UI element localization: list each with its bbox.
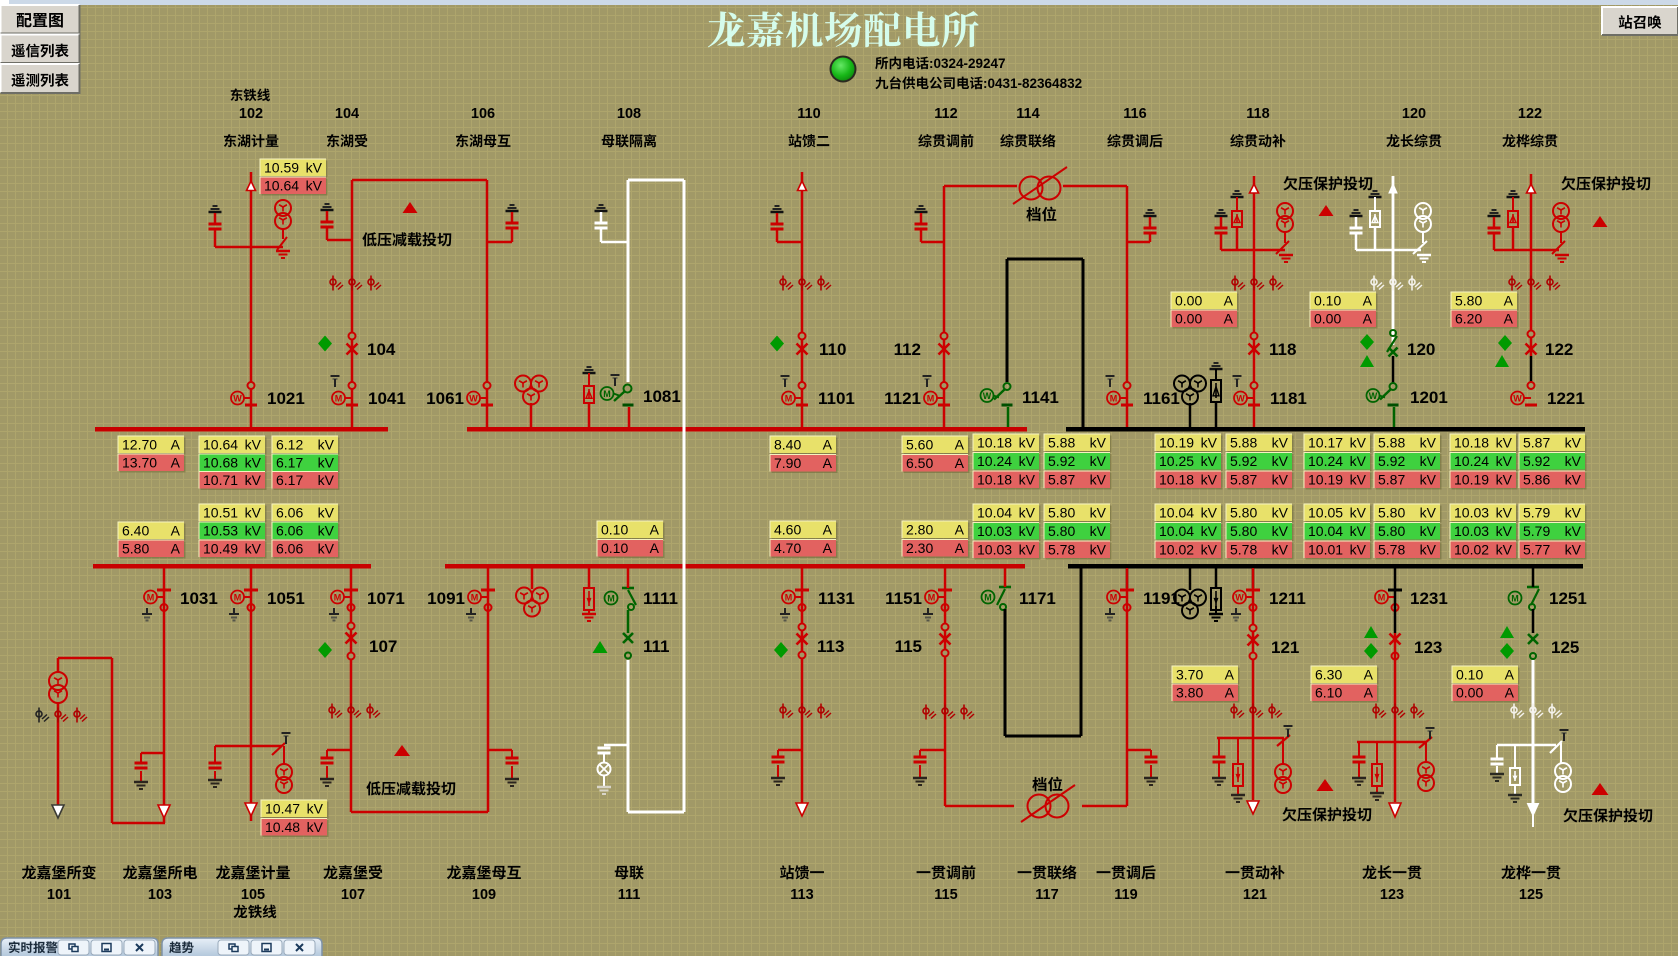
svg-text:1081: 1081	[643, 387, 681, 406]
svg-text:1021: 1021	[267, 389, 305, 408]
svg-text:A: A	[955, 455, 965, 471]
svg-text:A: A	[1224, 311, 1234, 327]
svg-text:A: A	[171, 541, 181, 557]
svg-text:kV: kV	[1090, 435, 1107, 451]
svg-text:111: 111	[618, 887, 641, 903]
svg-text:kV: kV	[1201, 453, 1218, 469]
svg-text:1041: 1041	[368, 389, 406, 408]
svg-text:W: W	[1513, 394, 1522, 404]
svg-text:125: 125	[1519, 887, 1543, 903]
svg-text:kV: kV	[1420, 472, 1437, 488]
svg-text:M: M	[1378, 593, 1386, 603]
svg-text:A: A	[1363, 293, 1373, 309]
svg-text:kV: kV	[318, 472, 335, 488]
svg-text:M: M	[234, 593, 242, 603]
svg-text:kV: kV	[1090, 523, 1107, 539]
svg-text:113: 113	[817, 637, 844, 656]
svg-text:kV: kV	[1201, 472, 1218, 488]
svg-text:kV: kV	[318, 437, 335, 453]
svg-text:125: 125	[1551, 638, 1579, 657]
svg-text:10.04: 10.04	[1308, 523, 1343, 539]
svg-text:kV: kV	[1350, 453, 1367, 469]
svg-text::0431-82364832: :0431-82364832	[983, 76, 1082, 91]
svg-text:101: 101	[47, 887, 71, 903]
svg-text:A: A	[823, 437, 833, 453]
svg-text:10.19: 10.19	[1454, 472, 1489, 488]
svg-text:M: M	[607, 594, 615, 604]
svg-text:5.80: 5.80	[1378, 505, 1405, 521]
svg-text:118: 118	[1269, 340, 1296, 359]
svg-text:10.64: 10.64	[264, 178, 299, 194]
svg-text:10.04: 10.04	[1159, 505, 1194, 521]
svg-text:6.20: 6.20	[1455, 311, 1482, 327]
svg-text:kV: kV	[1565, 453, 1582, 469]
svg-text:A: A	[955, 540, 965, 556]
svg-text:M: M	[928, 593, 936, 603]
svg-text:M: M	[603, 389, 611, 399]
svg-text:A: A	[1364, 667, 1374, 683]
svg-text:5.79: 5.79	[1523, 523, 1550, 539]
svg-text:kV: kV	[307, 801, 324, 817]
svg-text:109: 109	[472, 887, 496, 903]
svg-text:kV: kV	[318, 455, 335, 471]
svg-text:kV: kV	[307, 819, 324, 835]
svg-text:10.59: 10.59	[264, 160, 299, 176]
svg-text:0.10: 0.10	[1456, 667, 1483, 683]
svg-text:kV: kV	[245, 455, 262, 471]
svg-text:4.70: 4.70	[774, 540, 801, 556]
svg-text:5.78: 5.78	[1048, 542, 1075, 558]
svg-text:M: M	[334, 593, 342, 603]
svg-text:W: W	[233, 394, 242, 404]
svg-text:113: 113	[790, 887, 813, 903]
svg-text:2.30: 2.30	[906, 540, 933, 556]
svg-text:10.19: 10.19	[1159, 435, 1194, 451]
svg-text:kV: kV	[1420, 542, 1437, 558]
svg-text:10.25: 10.25	[1159, 453, 1194, 469]
svg-text:5.80: 5.80	[1048, 505, 1075, 521]
svg-text:120: 120	[1402, 106, 1426, 122]
svg-text:kV: kV	[1420, 523, 1437, 539]
svg-text:107: 107	[341, 887, 365, 903]
svg-text:kV: kV	[1201, 523, 1218, 539]
svg-text:10.03: 10.03	[977, 523, 1012, 539]
svg-text:A: A	[1224, 293, 1234, 309]
svg-text:kV: kV	[245, 523, 262, 539]
svg-text:1251: 1251	[1549, 589, 1587, 608]
svg-text:6.12: 6.12	[276, 437, 303, 453]
svg-text:1121: 1121	[884, 389, 921, 408]
svg-text:10.64: 10.64	[203, 437, 238, 453]
svg-text:kV: kV	[1420, 505, 1437, 521]
svg-text:kV: kV	[1019, 435, 1036, 451]
svg-text:6.10: 6.10	[1315, 685, 1342, 701]
svg-text:A: A	[171, 455, 181, 471]
svg-text:M: M	[1110, 593, 1118, 603]
svg-text:kV: kV	[1496, 453, 1513, 469]
svg-text:5.80: 5.80	[1455, 293, 1482, 309]
svg-text:1091: 1091	[427, 589, 465, 608]
svg-text:kV: kV	[1201, 505, 1218, 521]
svg-text:1131: 1131	[818, 589, 855, 608]
svg-text:1171: 1171	[1019, 589, 1056, 608]
svg-text:M: M	[785, 593, 793, 603]
svg-text:0.00: 0.00	[1175, 293, 1202, 309]
svg-text:117: 117	[1035, 887, 1058, 903]
svg-text:1181: 1181	[1270, 389, 1307, 408]
svg-text:kV: kV	[1090, 505, 1107, 521]
svg-text:1061: 1061	[426, 389, 464, 408]
svg-text:10.18: 10.18	[977, 435, 1012, 451]
svg-text:10.04: 10.04	[1159, 523, 1194, 539]
svg-text:kV: kV	[245, 437, 262, 453]
svg-text:W: W	[983, 391, 992, 401]
svg-text:W: W	[1235, 593, 1244, 603]
svg-text:10.47: 10.47	[265, 801, 300, 817]
svg-text:6.06: 6.06	[276, 541, 303, 557]
svg-text:kV: kV	[1496, 505, 1513, 521]
svg-text:111: 111	[643, 637, 670, 656]
svg-text:A: A	[823, 522, 833, 538]
svg-text:5.87: 5.87	[1230, 472, 1257, 488]
svg-text:kV: kV	[1496, 435, 1513, 451]
svg-text:107: 107	[369, 637, 397, 656]
svg-text:10.01: 10.01	[1308, 542, 1343, 558]
svg-text:115: 115	[934, 887, 957, 903]
svg-text:kV: kV	[1496, 542, 1513, 558]
svg-text:105: 105	[241, 887, 265, 903]
svg-text:A: A	[171, 437, 181, 453]
svg-text:kV: kV	[1420, 453, 1437, 469]
svg-text:A: A	[1504, 311, 1514, 327]
svg-text:kV: kV	[1350, 435, 1367, 451]
svg-text:123: 123	[1414, 638, 1442, 657]
svg-text:1201: 1201	[1410, 388, 1448, 407]
svg-text::0324-29247: :0324-29247	[929, 56, 1006, 71]
svg-text:10.18: 10.18	[1159, 472, 1194, 488]
svg-text:kV: kV	[1272, 453, 1289, 469]
svg-text:10.05: 10.05	[1308, 505, 1343, 521]
svg-text:A: A	[1364, 685, 1374, 701]
svg-text:kV: kV	[1201, 435, 1218, 451]
svg-text:A: A	[1504, 293, 1514, 309]
svg-text:10.19: 10.19	[1308, 472, 1343, 488]
svg-text:5.78: 5.78	[1378, 542, 1405, 558]
svg-text:W: W	[1236, 394, 1245, 404]
svg-text:M: M	[1511, 594, 1519, 604]
svg-text:A: A	[955, 522, 965, 538]
svg-text:A: A	[823, 455, 833, 471]
svg-text:5.88: 5.88	[1048, 435, 1075, 451]
svg-text:116: 116	[1123, 106, 1146, 122]
svg-text:7.90: 7.90	[774, 455, 801, 471]
svg-text:5.80: 5.80	[1048, 523, 1075, 539]
svg-text:0.10: 0.10	[601, 522, 628, 538]
svg-text:103: 103	[148, 887, 172, 903]
svg-text:10.03: 10.03	[1454, 505, 1489, 521]
svg-text:10.02: 10.02	[1454, 542, 1489, 558]
svg-text:5.87: 5.87	[1378, 472, 1405, 488]
svg-text:5.88: 5.88	[1230, 435, 1257, 451]
svg-text:kV: kV	[245, 472, 262, 488]
svg-text:A: A	[1363, 311, 1373, 327]
svg-text:5.88: 5.88	[1378, 435, 1405, 451]
svg-text:kV: kV	[1272, 542, 1289, 558]
svg-text:A: A	[955, 437, 965, 453]
svg-text:6.40: 6.40	[122, 523, 149, 539]
svg-text:114: 114	[1016, 106, 1039, 122]
svg-text:A: A	[1225, 667, 1235, 683]
svg-text:13.70: 13.70	[122, 455, 157, 471]
svg-text:kV: kV	[1272, 523, 1289, 539]
svg-text:102: 102	[239, 106, 263, 122]
svg-text:0.10: 0.10	[1314, 293, 1341, 309]
svg-text:6.06: 6.06	[276, 505, 303, 521]
svg-text:kV: kV	[1565, 435, 1582, 451]
svg-text:10.71: 10.71	[203, 472, 238, 488]
svg-text:A: A	[1505, 685, 1515, 701]
svg-text:5.80: 5.80	[1230, 523, 1257, 539]
svg-text:6.17: 6.17	[276, 455, 303, 471]
svg-text:110: 110	[819, 340, 846, 359]
svg-text:10.17: 10.17	[1308, 435, 1343, 451]
svg-text:kV: kV	[318, 523, 335, 539]
svg-text:0.10: 0.10	[601, 540, 628, 556]
svg-text:10.24: 10.24	[1308, 453, 1343, 469]
svg-text:5.92: 5.92	[1230, 453, 1257, 469]
svg-text:5.92: 5.92	[1048, 453, 1075, 469]
svg-text:kV: kV	[1272, 505, 1289, 521]
svg-text:10.24: 10.24	[1454, 453, 1489, 469]
svg-text:10.24: 10.24	[977, 453, 1012, 469]
svg-text:8.40: 8.40	[774, 437, 801, 453]
svg-text:kV: kV	[1565, 472, 1582, 488]
svg-text:M: M	[927, 394, 935, 404]
svg-text:10.49: 10.49	[203, 541, 238, 557]
svg-text:5.87: 5.87	[1048, 472, 1075, 488]
svg-text:kV: kV	[245, 541, 262, 557]
svg-text:121: 121	[1243, 887, 1267, 903]
svg-text:kV: kV	[1090, 472, 1107, 488]
svg-text:5.78: 5.78	[1230, 542, 1257, 558]
svg-text:5.80: 5.80	[1230, 505, 1257, 521]
svg-text:5.79: 5.79	[1523, 505, 1550, 521]
svg-text:122: 122	[1545, 340, 1573, 359]
svg-text:kV: kV	[1496, 472, 1513, 488]
svg-text:A: A	[1505, 667, 1515, 683]
svg-text:121: 121	[1271, 638, 1299, 657]
svg-text:A: A	[171, 523, 181, 539]
svg-text:119: 119	[1114, 887, 1137, 903]
svg-text:kV: kV	[1272, 435, 1289, 451]
svg-text:108: 108	[617, 106, 641, 122]
svg-text:1071: 1071	[367, 589, 405, 608]
svg-text:3.70: 3.70	[1176, 667, 1203, 683]
svg-text:0.00: 0.00	[1175, 311, 1202, 327]
svg-text:kV: kV	[1019, 505, 1036, 521]
svg-text:10.53: 10.53	[203, 523, 238, 539]
svg-text:kV: kV	[306, 178, 323, 194]
svg-text:kV: kV	[1565, 505, 1582, 521]
svg-text:10.68: 10.68	[203, 455, 238, 471]
svg-text:M: M	[335, 394, 343, 404]
svg-text:kV: kV	[1350, 505, 1367, 521]
svg-text:1111: 1111	[643, 589, 678, 608]
svg-text:1051: 1051	[267, 589, 305, 608]
svg-text:kV: kV	[1272, 472, 1289, 488]
svg-text:kV: kV	[318, 541, 335, 557]
svg-text:10.18: 10.18	[977, 472, 1012, 488]
svg-text:1161: 1161	[1143, 389, 1180, 408]
svg-text:10.04: 10.04	[977, 505, 1012, 521]
svg-text:A: A	[650, 522, 660, 538]
svg-text:M: M	[785, 394, 793, 404]
svg-text:110: 110	[797, 106, 820, 122]
svg-text:112: 112	[894, 340, 921, 359]
svg-text:kV: kV	[1350, 542, 1367, 558]
svg-text:1211: 1211	[1269, 589, 1306, 608]
svg-text:1031: 1031	[180, 589, 218, 608]
svg-text:6.50: 6.50	[906, 455, 933, 471]
svg-text:10.02: 10.02	[1159, 542, 1194, 558]
svg-text:5.92: 5.92	[1378, 453, 1405, 469]
svg-text:5.92: 5.92	[1523, 453, 1550, 469]
svg-text:6.06: 6.06	[276, 523, 303, 539]
svg-text:104: 104	[367, 340, 396, 359]
svg-text:5.80: 5.80	[1378, 523, 1405, 539]
svg-text:M: M	[984, 593, 992, 603]
svg-text:112: 112	[934, 106, 957, 122]
svg-text:kV: kV	[1090, 542, 1107, 558]
svg-text:1221: 1221	[1547, 389, 1585, 408]
svg-text:10.03: 10.03	[977, 542, 1012, 558]
svg-text:1101: 1101	[818, 389, 855, 408]
svg-text:0.00: 0.00	[1456, 685, 1483, 701]
svg-text:A: A	[823, 540, 833, 556]
svg-text:115: 115	[895, 637, 922, 656]
svg-text:1141: 1141	[1022, 388, 1059, 407]
svg-text:kV: kV	[318, 505, 335, 521]
svg-text:kV: kV	[1496, 523, 1513, 539]
svg-text:A: A	[1225, 685, 1235, 701]
svg-text:M: M	[471, 593, 479, 603]
svg-text:1151: 1151	[885, 589, 922, 608]
svg-text:W: W	[1369, 391, 1378, 401]
svg-text:6.17: 6.17	[276, 472, 303, 488]
svg-text:10.48: 10.48	[265, 819, 300, 835]
svg-text:106: 106	[471, 106, 495, 122]
svg-text:5.77: 5.77	[1523, 542, 1550, 558]
svg-text:M: M	[1110, 394, 1118, 404]
svg-text:kV: kV	[1019, 523, 1036, 539]
svg-text:118: 118	[1246, 106, 1269, 122]
svg-text:10.18: 10.18	[1454, 435, 1489, 451]
svg-text:kV: kV	[1201, 542, 1218, 558]
svg-text:kV: kV	[1350, 523, 1367, 539]
svg-text:kV: kV	[1019, 542, 1036, 558]
svg-text:122: 122	[1518, 106, 1542, 122]
svg-text:10.03: 10.03	[1454, 523, 1489, 539]
svg-text:5.87: 5.87	[1523, 435, 1550, 451]
svg-text:6.30: 6.30	[1315, 667, 1342, 683]
svg-text:5.86: 5.86	[1523, 472, 1550, 488]
svg-text:123: 123	[1380, 887, 1404, 903]
svg-text:5.60: 5.60	[906, 437, 933, 453]
svg-text:A: A	[650, 540, 660, 556]
svg-text:kV: kV	[306, 160, 323, 176]
svg-text:0.00: 0.00	[1314, 311, 1341, 327]
svg-text:2.80: 2.80	[906, 522, 933, 538]
svg-text:5.80: 5.80	[122, 541, 149, 557]
svg-text:W: W	[469, 394, 478, 404]
svg-text:1231: 1231	[1410, 589, 1448, 608]
svg-text:3.80: 3.80	[1176, 685, 1203, 701]
svg-text:12.70: 12.70	[122, 437, 157, 453]
svg-text:10.51: 10.51	[203, 505, 238, 521]
svg-text:kV: kV	[1090, 453, 1107, 469]
svg-text:kV: kV	[1019, 453, 1036, 469]
svg-text:104: 104	[335, 106, 359, 122]
svg-text:120: 120	[1407, 340, 1435, 359]
svg-text:M: M	[147, 593, 155, 603]
svg-text:kV: kV	[1565, 523, 1582, 539]
svg-text:kV: kV	[1350, 472, 1367, 488]
svg-text:kV: kV	[1420, 435, 1437, 451]
svg-text:kV: kV	[1019, 472, 1036, 488]
svg-text:kV: kV	[1565, 542, 1582, 558]
svg-text:4.60: 4.60	[774, 522, 801, 538]
svg-text:kV: kV	[245, 505, 262, 521]
